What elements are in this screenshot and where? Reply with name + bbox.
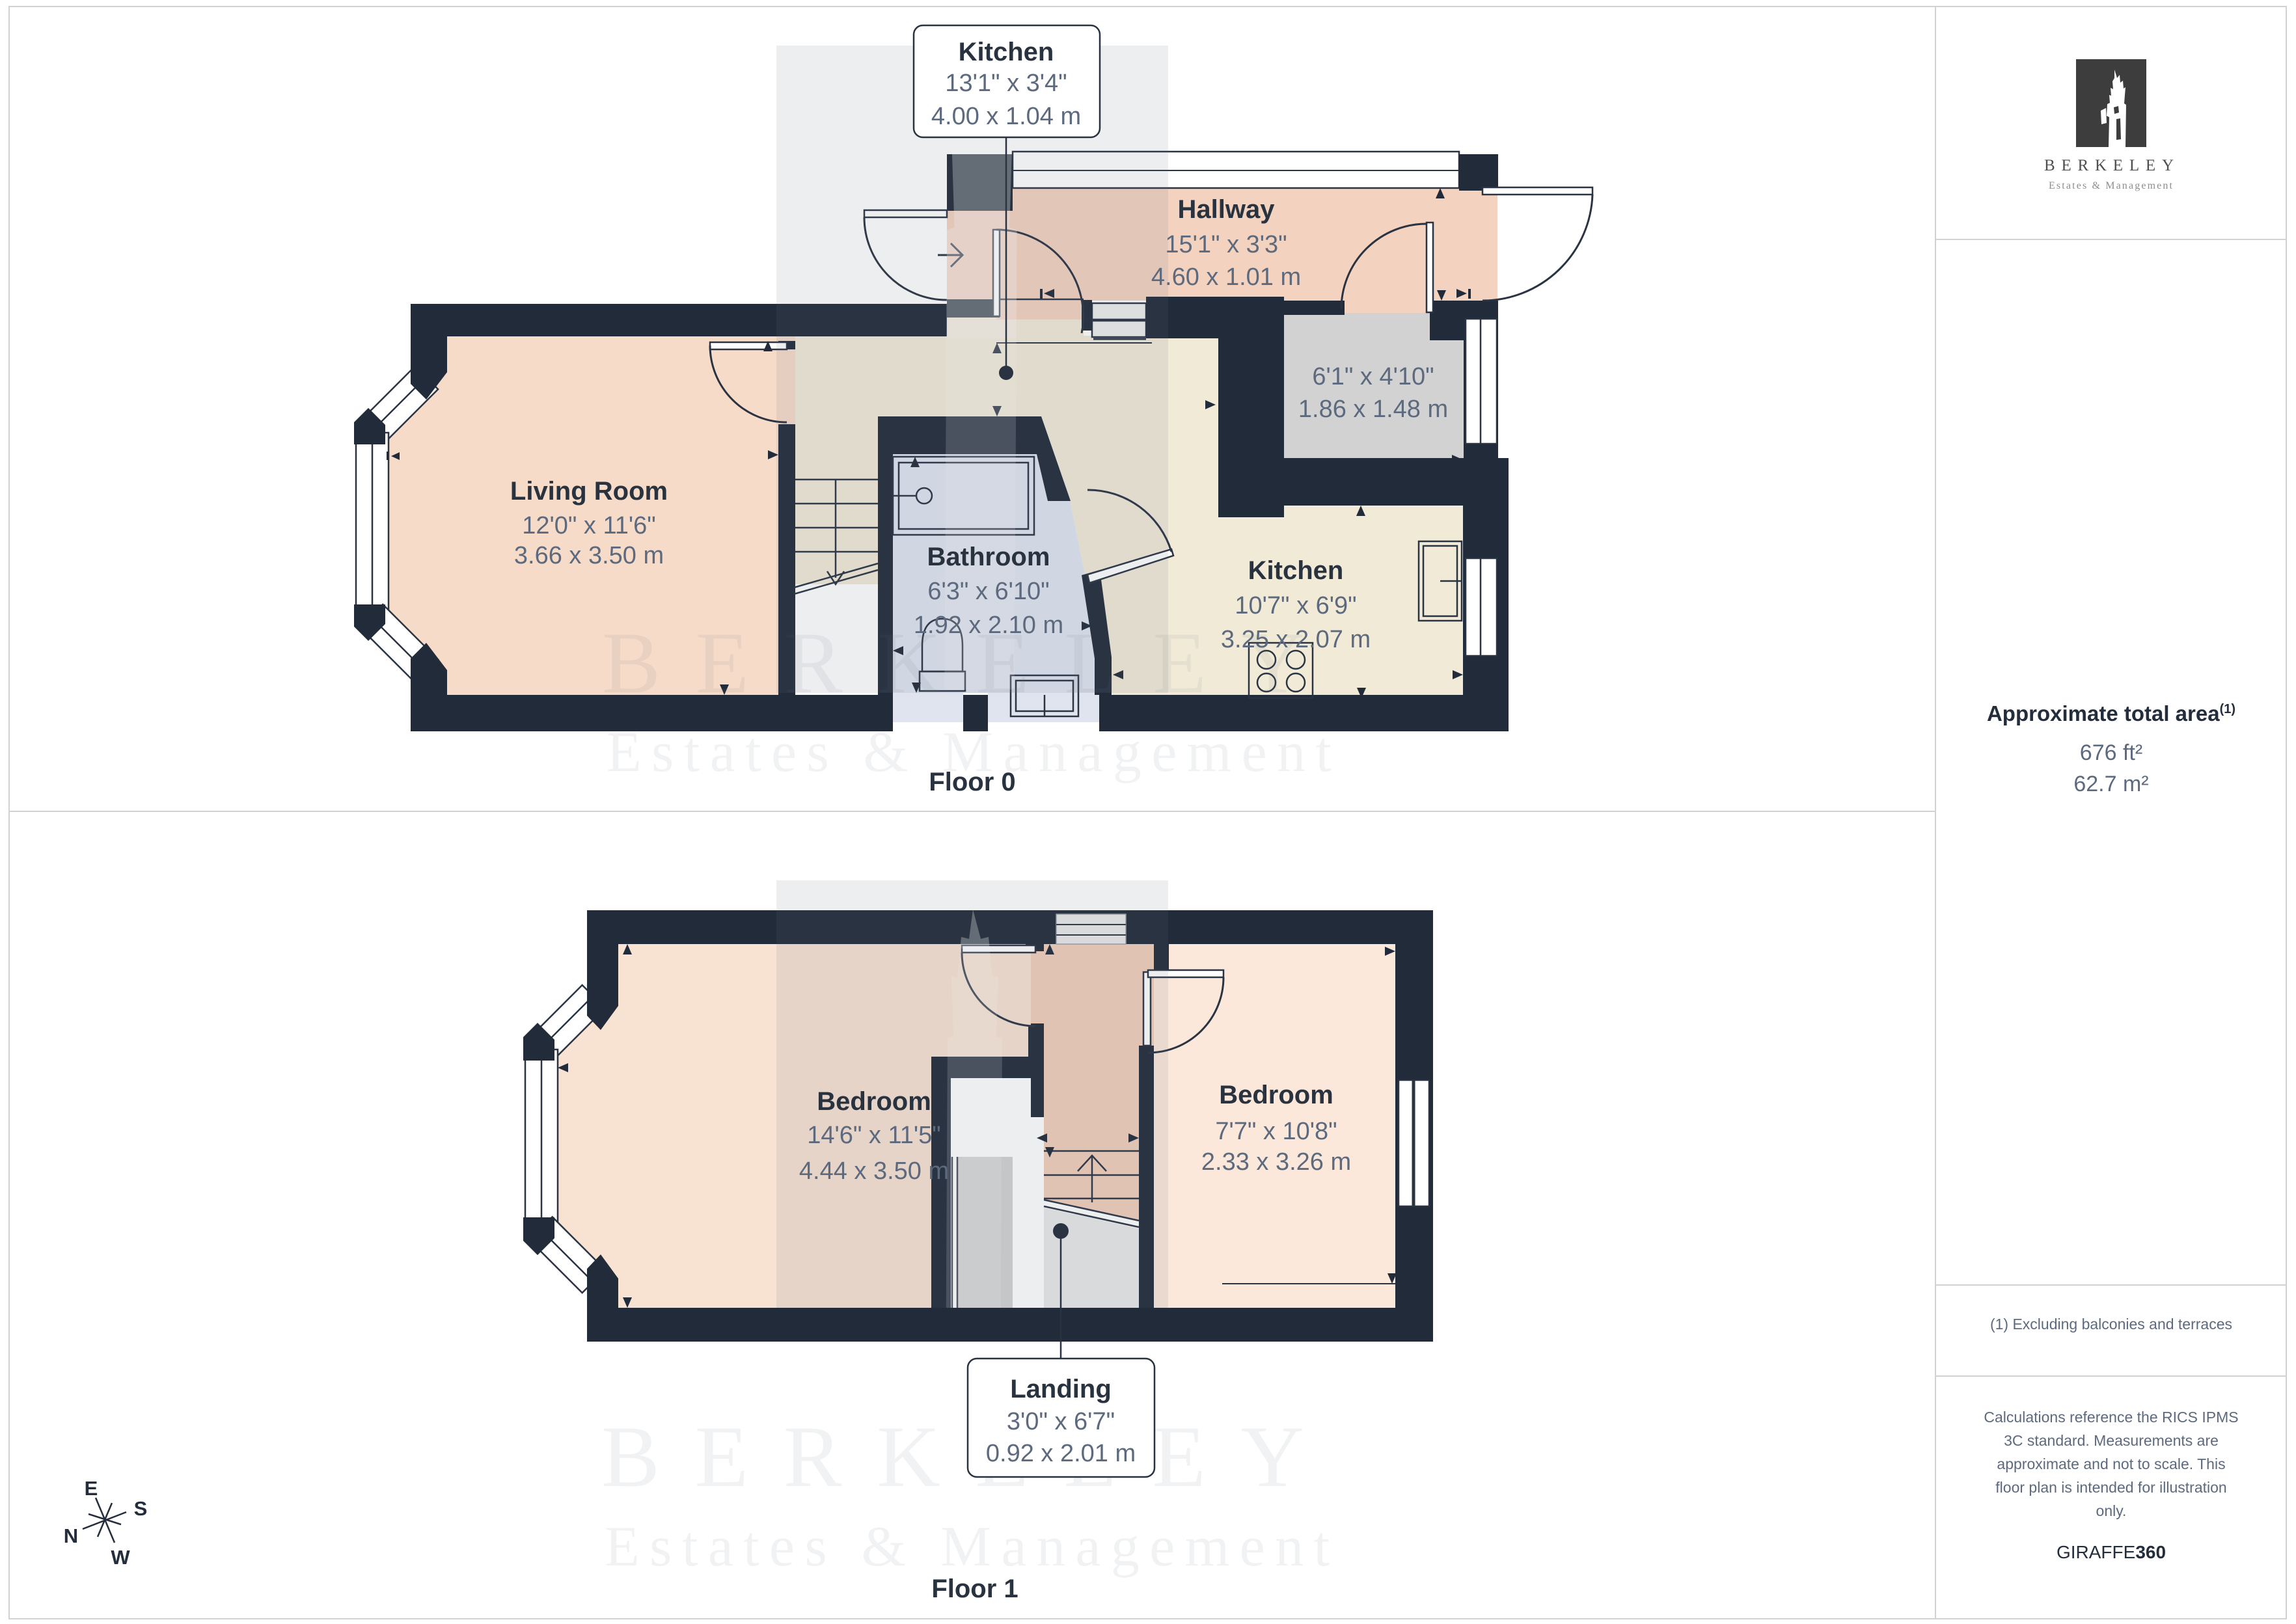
svg-text:12'0" x 11'6": 12'0" x 11'6" bbox=[522, 512, 656, 539]
svg-text:Kitchen: Kitchen bbox=[1248, 556, 1344, 585]
svg-text:13'1" x 3'4": 13'1" x 3'4" bbox=[945, 70, 1067, 97]
svg-text:14'6" x 11'5": 14'6" x 11'5" bbox=[807, 1122, 941, 1149]
svg-text:4.00 x 1.04 m: 4.00 x 1.04 m bbox=[931, 103, 1081, 130]
svg-text:7'7" x 10'8": 7'7" x 10'8" bbox=[1215, 1118, 1337, 1145]
svg-text:676 ft²: 676 ft² bbox=[2080, 740, 2142, 765]
svg-text:approximate and not to scale.: approximate and not to scale. This bbox=[1997, 1455, 2225, 1472]
svg-text:0.92 x 2.01 m: 0.92 x 2.01 m bbox=[986, 1440, 1136, 1467]
svg-text:Bedroom: Bedroom bbox=[1219, 1081, 1333, 1109]
svg-text:Landing: Landing bbox=[1010, 1375, 1112, 1403]
svg-text:Living Room: Living Room bbox=[510, 477, 668, 506]
svg-text:Estates & Management: Estates & Management bbox=[2049, 180, 2174, 191]
svg-text:W: W bbox=[111, 1546, 130, 1569]
svg-text:Approximate total area(1): Approximate total area(1) bbox=[1987, 701, 2235, 725]
svg-text:4.44 x 3.50 m: 4.44 x 3.50 m bbox=[799, 1157, 949, 1185]
svg-text:1.86 x 1.48 m: 1.86 x 1.48 m bbox=[1298, 396, 1448, 423]
svg-text:(1) Excluding balconies and te: (1) Excluding balconies and terraces bbox=[1990, 1316, 2232, 1333]
svg-text:3'0" x 6'7": 3'0" x 6'7" bbox=[1007, 1408, 1115, 1435]
svg-text:floor plan is intended for ill: floor plan is intended for illustration bbox=[1995, 1479, 2226, 1496]
svg-text:62.7 m²: 62.7 m² bbox=[2073, 772, 2148, 796]
svg-text:3C standard. Measurements are: 3C standard. Measurements are bbox=[2004, 1432, 2219, 1449]
svg-text:3.25 x 2.07 m: 3.25 x 2.07 m bbox=[1221, 626, 1371, 653]
svg-text:GIRAFFE360: GIRAFFE360 bbox=[2057, 1542, 2166, 1562]
svg-text:6'1" x 4'10": 6'1" x 4'10" bbox=[1312, 363, 1434, 390]
svg-text:Floor 0: Floor 0 bbox=[929, 768, 1015, 796]
svg-text:Bedroom: Bedroom bbox=[817, 1087, 931, 1116]
svg-text:3.66 x 3.50 m: 3.66 x 3.50 m bbox=[514, 542, 664, 569]
svg-text:2.33 x 3.26 m: 2.33 x 3.26 m bbox=[1201, 1148, 1351, 1176]
svg-text:E: E bbox=[85, 1477, 98, 1500]
svg-text:Floor 1: Floor 1 bbox=[931, 1575, 1018, 1603]
svg-text:Bathroom: Bathroom bbox=[927, 543, 1050, 571]
svg-text:6'3" x 6'10": 6'3" x 6'10" bbox=[927, 578, 1049, 605]
svg-text:15'1" x 3'3": 15'1" x 3'3" bbox=[1165, 231, 1287, 258]
svg-text:4.60 x 1.01 m: 4.60 x 1.01 m bbox=[1151, 264, 1301, 291]
svg-text:BERKELEY: BERKELEY bbox=[2044, 157, 2178, 174]
svg-text:Hallway: Hallway bbox=[1178, 195, 1276, 224]
svg-text:Estates & Management: Estates & Management bbox=[605, 1515, 1340, 1578]
svg-text:1.92 x 2.10 m: 1.92 x 2.10 m bbox=[914, 612, 1063, 639]
svg-text:only.: only. bbox=[2096, 1502, 2127, 1519]
svg-text:N: N bbox=[64, 1524, 78, 1547]
svg-text:Calculations reference the RIC: Calculations reference the RICS IPMS bbox=[1984, 1409, 2238, 1426]
svg-text:Kitchen: Kitchen bbox=[959, 38, 1054, 66]
svg-text:10'7" x 6'9": 10'7" x 6'9" bbox=[1235, 592, 1356, 619]
svg-text:S: S bbox=[134, 1497, 148, 1520]
